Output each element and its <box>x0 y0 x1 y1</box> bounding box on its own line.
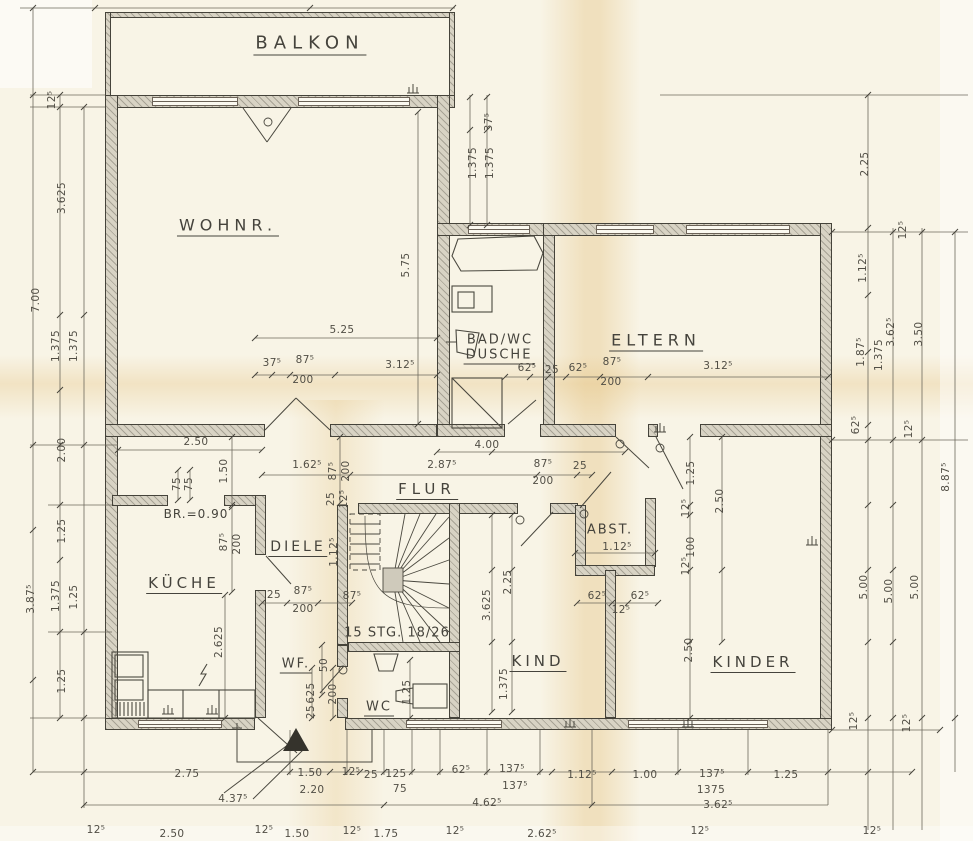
dimension-label: 2.50 <box>714 489 726 514</box>
dimension-label: 1.75 <box>374 828 399 840</box>
room-label-balkon: BALKON <box>253 33 366 56</box>
dimension-label: 3.62⁵ <box>703 799 733 811</box>
dimension-label: 25 <box>573 460 587 472</box>
dimension-label: 37⁵ <box>483 113 495 132</box>
dimension-label: 62⁵ <box>850 416 862 435</box>
dimension-label: 2.625 <box>213 626 225 658</box>
dimension-label: 625 <box>305 682 317 703</box>
dimension-label: 1.375 <box>50 330 62 362</box>
dimension-label: 75 <box>183 477 195 491</box>
room-label-flur: FLUR <box>396 480 458 500</box>
dimension-label: 1.375 <box>873 339 885 371</box>
dimension-label: 3.625 <box>56 182 68 214</box>
dimension-label: 2.25 <box>859 152 871 177</box>
dimension-label: 8.87⁵ <box>940 462 952 492</box>
dimension-label: 137⁵ <box>699 768 725 780</box>
dimension-label: 4.00 <box>475 439 500 451</box>
dimension-label: 2.50 <box>683 638 695 663</box>
dimension-label: 1.25 <box>56 669 68 694</box>
room-label-stair-note: 15 STG. 18/26 <box>344 626 450 641</box>
room-label-badwc: BAD/WC <box>467 333 533 348</box>
dimension-label: 1.12⁵ <box>857 253 869 283</box>
entrance-arrow-icon <box>283 728 309 751</box>
dimension-label: 62⁵ <box>631 590 650 602</box>
dimension-label: 12⁵ <box>338 490 350 509</box>
dimension-label: 12⁵ <box>691 825 710 837</box>
dimension-label: 25 <box>364 769 378 781</box>
room-label-kinder: KINDER <box>711 653 796 673</box>
dimension-label: 4.37⁵ <box>218 793 248 805</box>
dimension-label: 12⁵ <box>46 91 58 110</box>
dimension-label: 3.62⁵ <box>885 317 897 347</box>
room-label-kind: KIND <box>509 652 566 672</box>
dimension-label: 1.25 <box>56 519 68 544</box>
dimension-label: 12⁵ <box>901 714 913 733</box>
dimension-label: 12⁵ <box>255 824 274 836</box>
dimension-label: 25 <box>325 492 337 506</box>
dimension-label: 75 <box>393 783 407 795</box>
dimension-label: 1.12⁵ <box>602 541 632 553</box>
dimension-label: 1.375 <box>50 580 62 612</box>
dimension-label: 200 <box>292 603 313 615</box>
dimension-label: 1.25 <box>68 585 80 610</box>
dimension-label: 200 <box>532 475 553 487</box>
stair <box>350 514 449 642</box>
dimension-label: 3.50 <box>913 322 925 347</box>
dimension-label: 1.50 <box>218 459 230 484</box>
dimension-label: 87⁵ <box>296 354 315 366</box>
dimension-label: 125 <box>385 768 406 780</box>
dimension-label: 75 <box>171 477 183 491</box>
dimension-label: 200 <box>340 460 352 481</box>
dimension-label: 12⁵ <box>612 604 631 616</box>
dimension-label: 12⁵ <box>446 825 465 837</box>
dimension-label: 2.75 <box>175 768 200 780</box>
dimension-label: 87⁵ <box>343 590 362 602</box>
room-label-abst: ABST. <box>587 523 633 538</box>
dimension-label: 62⁵ <box>588 590 607 602</box>
dimension-label: 1.50 <box>298 767 323 779</box>
dimension-label: 2.62⁵ <box>527 828 557 840</box>
dimension-label: 1.00 <box>633 769 658 781</box>
dimension-label: 7.00 <box>30 288 42 313</box>
dimension-label: 5.00 <box>909 575 921 600</box>
dimension-label: 3.12⁵ <box>385 359 415 371</box>
dimension-label: 1.375 <box>467 147 479 179</box>
dimension-label: 137⁵ <box>499 763 525 775</box>
dimension-label: 137⁵ <box>502 780 528 792</box>
dimension-label: 200 <box>292 374 313 386</box>
dimension-label: 1.12⁵ <box>328 537 340 567</box>
dimension-label: 12⁵ <box>680 557 692 576</box>
dimension-label: 2.50 <box>160 828 185 840</box>
dimension-label: 12⁵ <box>903 420 915 439</box>
dimension-label: 1.25 <box>401 680 413 705</box>
dimension-label: 2.87⁵ <box>427 459 457 471</box>
dimension-label: 87⁵ <box>534 458 553 470</box>
dimension-label: 12⁵ <box>897 221 909 240</box>
dimension-label: 5.25 <box>330 324 355 336</box>
dimension-label: 1.25 <box>774 769 799 781</box>
dimension-label: 1.87⁵ <box>855 337 867 367</box>
dimension-label: 2.25 <box>502 570 514 595</box>
dimension-label: 12⁵ <box>343 825 362 837</box>
dimension-label: 62⁵ <box>518 362 537 374</box>
dimension-label: 2.00 <box>56 438 68 463</box>
dimension-label: 37⁵ <box>263 357 282 369</box>
dimension-label: 1.50 <box>285 828 310 840</box>
dimension-label: 25 <box>267 589 281 601</box>
room-label-wc: WC <box>364 700 394 717</box>
dimension-label: 1.25 <box>685 461 697 486</box>
room-label-diele: DIELE <box>268 539 327 557</box>
door-swings <box>224 108 683 799</box>
dimension-label: 50 <box>318 658 330 672</box>
dimension-label: 1.375 <box>68 330 80 362</box>
dimension-label: 87⁵ <box>294 585 313 597</box>
dimension-label: 87⁵ <box>603 356 622 368</box>
dimension-label: 87⁵ <box>218 533 230 552</box>
dimension-label: 87⁵ <box>327 462 339 481</box>
dimension-label: 12⁵ <box>680 499 692 518</box>
dimension-label: 3.87⁵ <box>25 584 37 614</box>
dimension-label: 1.375 <box>498 668 510 700</box>
floor-plan-sheet: BALKONWOHNR.BAD/WCDUSCHEELTERNFLURDIELEK… <box>0 0 973 841</box>
dimension-label: 2.50 <box>184 436 209 448</box>
dimension-label: 5.75 <box>400 253 412 278</box>
dimension-label: 12⁵ <box>848 712 860 731</box>
room-label-eltern: ELTERN <box>609 331 703 352</box>
dimension-label: 12⁵ <box>87 824 106 836</box>
dimension-label: 5.00 <box>883 579 895 604</box>
room-label-wf: WF. <box>280 657 312 674</box>
dimension-label: 200 <box>600 376 621 388</box>
dimension-label: 12⁵ <box>863 825 882 837</box>
dimension-label: 1.62⁵ <box>292 459 322 471</box>
dimension-label: 12⁵ <box>342 766 361 778</box>
dimension-label: 25 <box>545 364 559 376</box>
dimension-label: 4.62⁵ <box>472 797 502 809</box>
radiator-symbols <box>162 84 818 727</box>
dimension-label: 100 <box>685 536 697 557</box>
dimension-label: 1.375 <box>484 147 496 179</box>
dimension-label: 1375 <box>697 784 725 796</box>
room-label-kueche: KÜCHE <box>146 574 222 594</box>
dimension-label: 200 <box>327 683 339 704</box>
dimension-label: 3.12⁵ <box>703 360 733 372</box>
dimension-label: 1.12⁵ <box>567 769 597 781</box>
dimension-label: 200 <box>231 533 243 554</box>
room-label-wohnr: WOHNR. <box>177 216 279 237</box>
dimension-label: 62⁵ <box>452 764 471 776</box>
dimension-label: 62⁵ <box>569 362 588 374</box>
dimension-label: 25 <box>305 705 317 719</box>
dimension-label: 3.625 <box>481 589 493 621</box>
dimension-label: 5.00 <box>858 575 870 600</box>
room-label-door-note: BR.=0.90 <box>164 507 229 521</box>
dimension-label: 2.20 <box>300 784 325 796</box>
